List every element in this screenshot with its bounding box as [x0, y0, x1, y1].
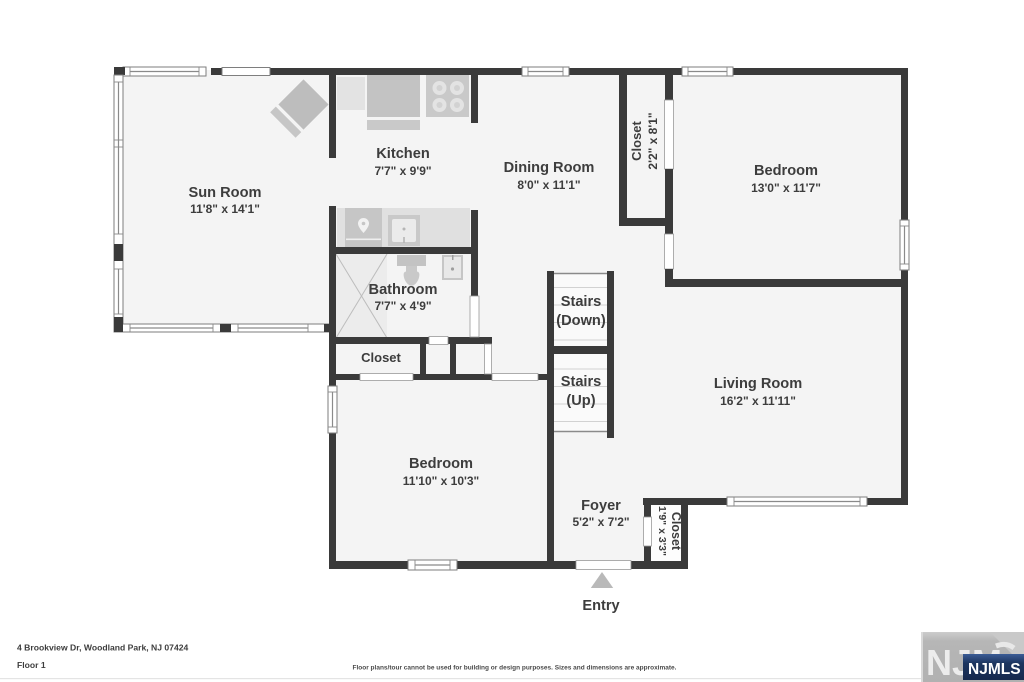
svg-text:11'10" x 10'3": 11'10" x 10'3" [403, 474, 479, 488]
svg-text:Bedroom: Bedroom [754, 163, 818, 179]
svg-text:13'0" x 11'7": 13'0" x 11'7" [751, 181, 821, 195]
svg-text:Floor plans/tour cannot be use: Floor plans/tour cannot be used for buil… [353, 665, 677, 672]
svg-text:4 Brookview Dr, Woodland Park,: 4 Brookview Dr, Woodland Park, NJ 07424 [17, 643, 189, 653]
svg-text:Living Room: Living Room [714, 376, 802, 392]
svg-text:NJMLS: NJMLS [968, 661, 1021, 678]
svg-text:Closet: Closet [669, 512, 683, 551]
svg-text:Bathroom: Bathroom [369, 282, 438, 298]
svg-text:Dining Room: Dining Room [504, 160, 595, 176]
svg-text:1'9" x 3'3": 1'9" x 3'3" [656, 506, 668, 556]
svg-text:5'2" x 7'2": 5'2" x 7'2" [572, 515, 629, 529]
svg-text:7'7" x 9'9": 7'7" x 9'9" [374, 164, 431, 178]
svg-text:Stairs: Stairs [561, 294, 602, 310]
svg-text:Kitchen: Kitchen [376, 146, 430, 162]
svg-text:Foyer: Foyer [581, 498, 621, 514]
svg-text:11'8" x 14'1": 11'8" x 14'1" [190, 202, 260, 216]
svg-text:16'2" x 11'11": 16'2" x 11'11" [720, 394, 796, 408]
svg-text:Stairs: Stairs [561, 374, 602, 390]
svg-text:Floor 1: Floor 1 [17, 660, 46, 670]
svg-text:8'0" x 11'1": 8'0" x 11'1" [517, 178, 580, 192]
svg-text:(Up): (Up) [566, 393, 595, 409]
svg-text:2'2" x 8'1": 2'2" x 8'1" [646, 112, 660, 169]
svg-text:Entry: Entry [582, 598, 620, 614]
svg-text:Bedroom: Bedroom [409, 456, 473, 472]
svg-text:(Down): (Down) [556, 313, 606, 329]
svg-text:Sun Room: Sun Room [189, 185, 262, 201]
svg-text:Closet: Closet [361, 350, 401, 365]
svg-text:7'7" x 4'9": 7'7" x 4'9" [374, 299, 431, 313]
svg-text:Closet: Closet [629, 120, 644, 160]
